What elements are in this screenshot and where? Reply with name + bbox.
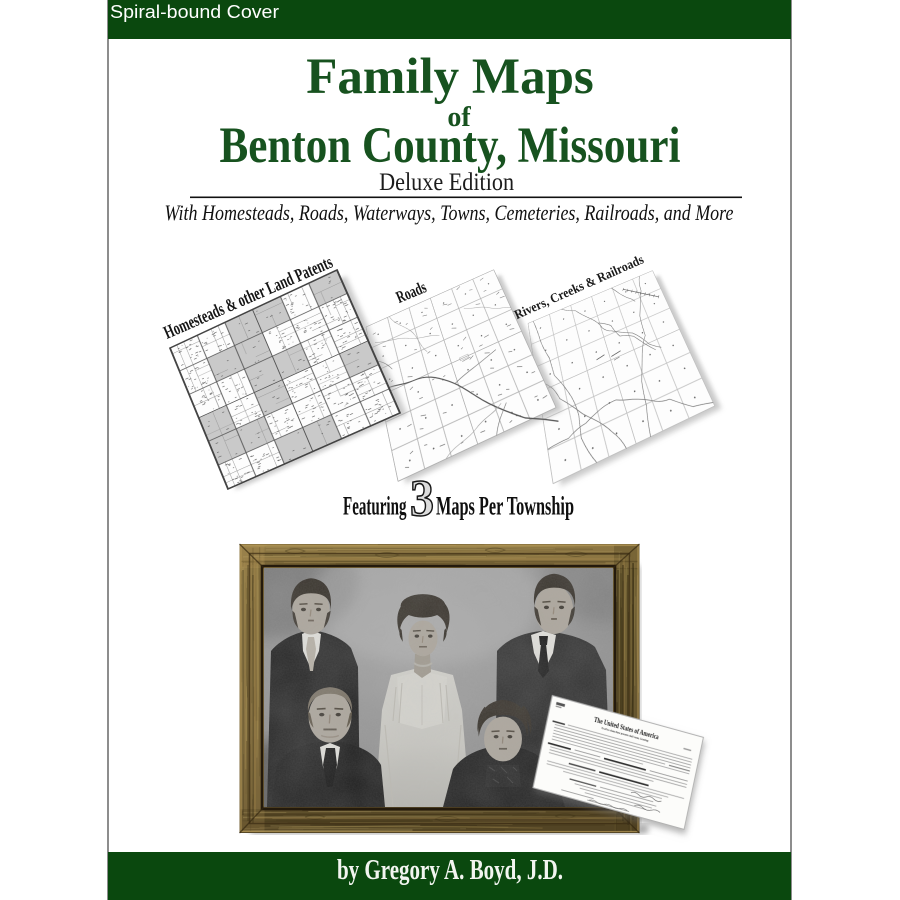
svg-text:Family Maps: Family Maps	[306, 49, 594, 105]
svg-text:With Homesteads, Roads, Waterw: With Homesteads, Roads, Waterways, Towns…	[165, 200, 734, 225]
svg-text:Featuring: Featuring	[343, 491, 407, 521]
svg-text:Deluxe Edition: Deluxe Edition	[379, 169, 514, 196]
svg-text:Homesteads & other Land Patent: Homesteads & other Land Patents	[161, 253, 336, 344]
svg-text:by Gregory A. Boyd, J.D.: by Gregory A. Boyd, J.D.	[337, 854, 563, 886]
svg-text:Maps Per Township: Maps Per Township	[436, 491, 574, 521]
svg-text:3: 3	[410, 471, 434, 528]
svg-text:Rivers, Creeks & Railroads: Rivers, Creeks & Railroads	[512, 251, 646, 322]
svg-text:Benton County, Missouri: Benton County, Missouri	[220, 118, 681, 174]
svg-text:Roads: Roads	[393, 277, 429, 307]
